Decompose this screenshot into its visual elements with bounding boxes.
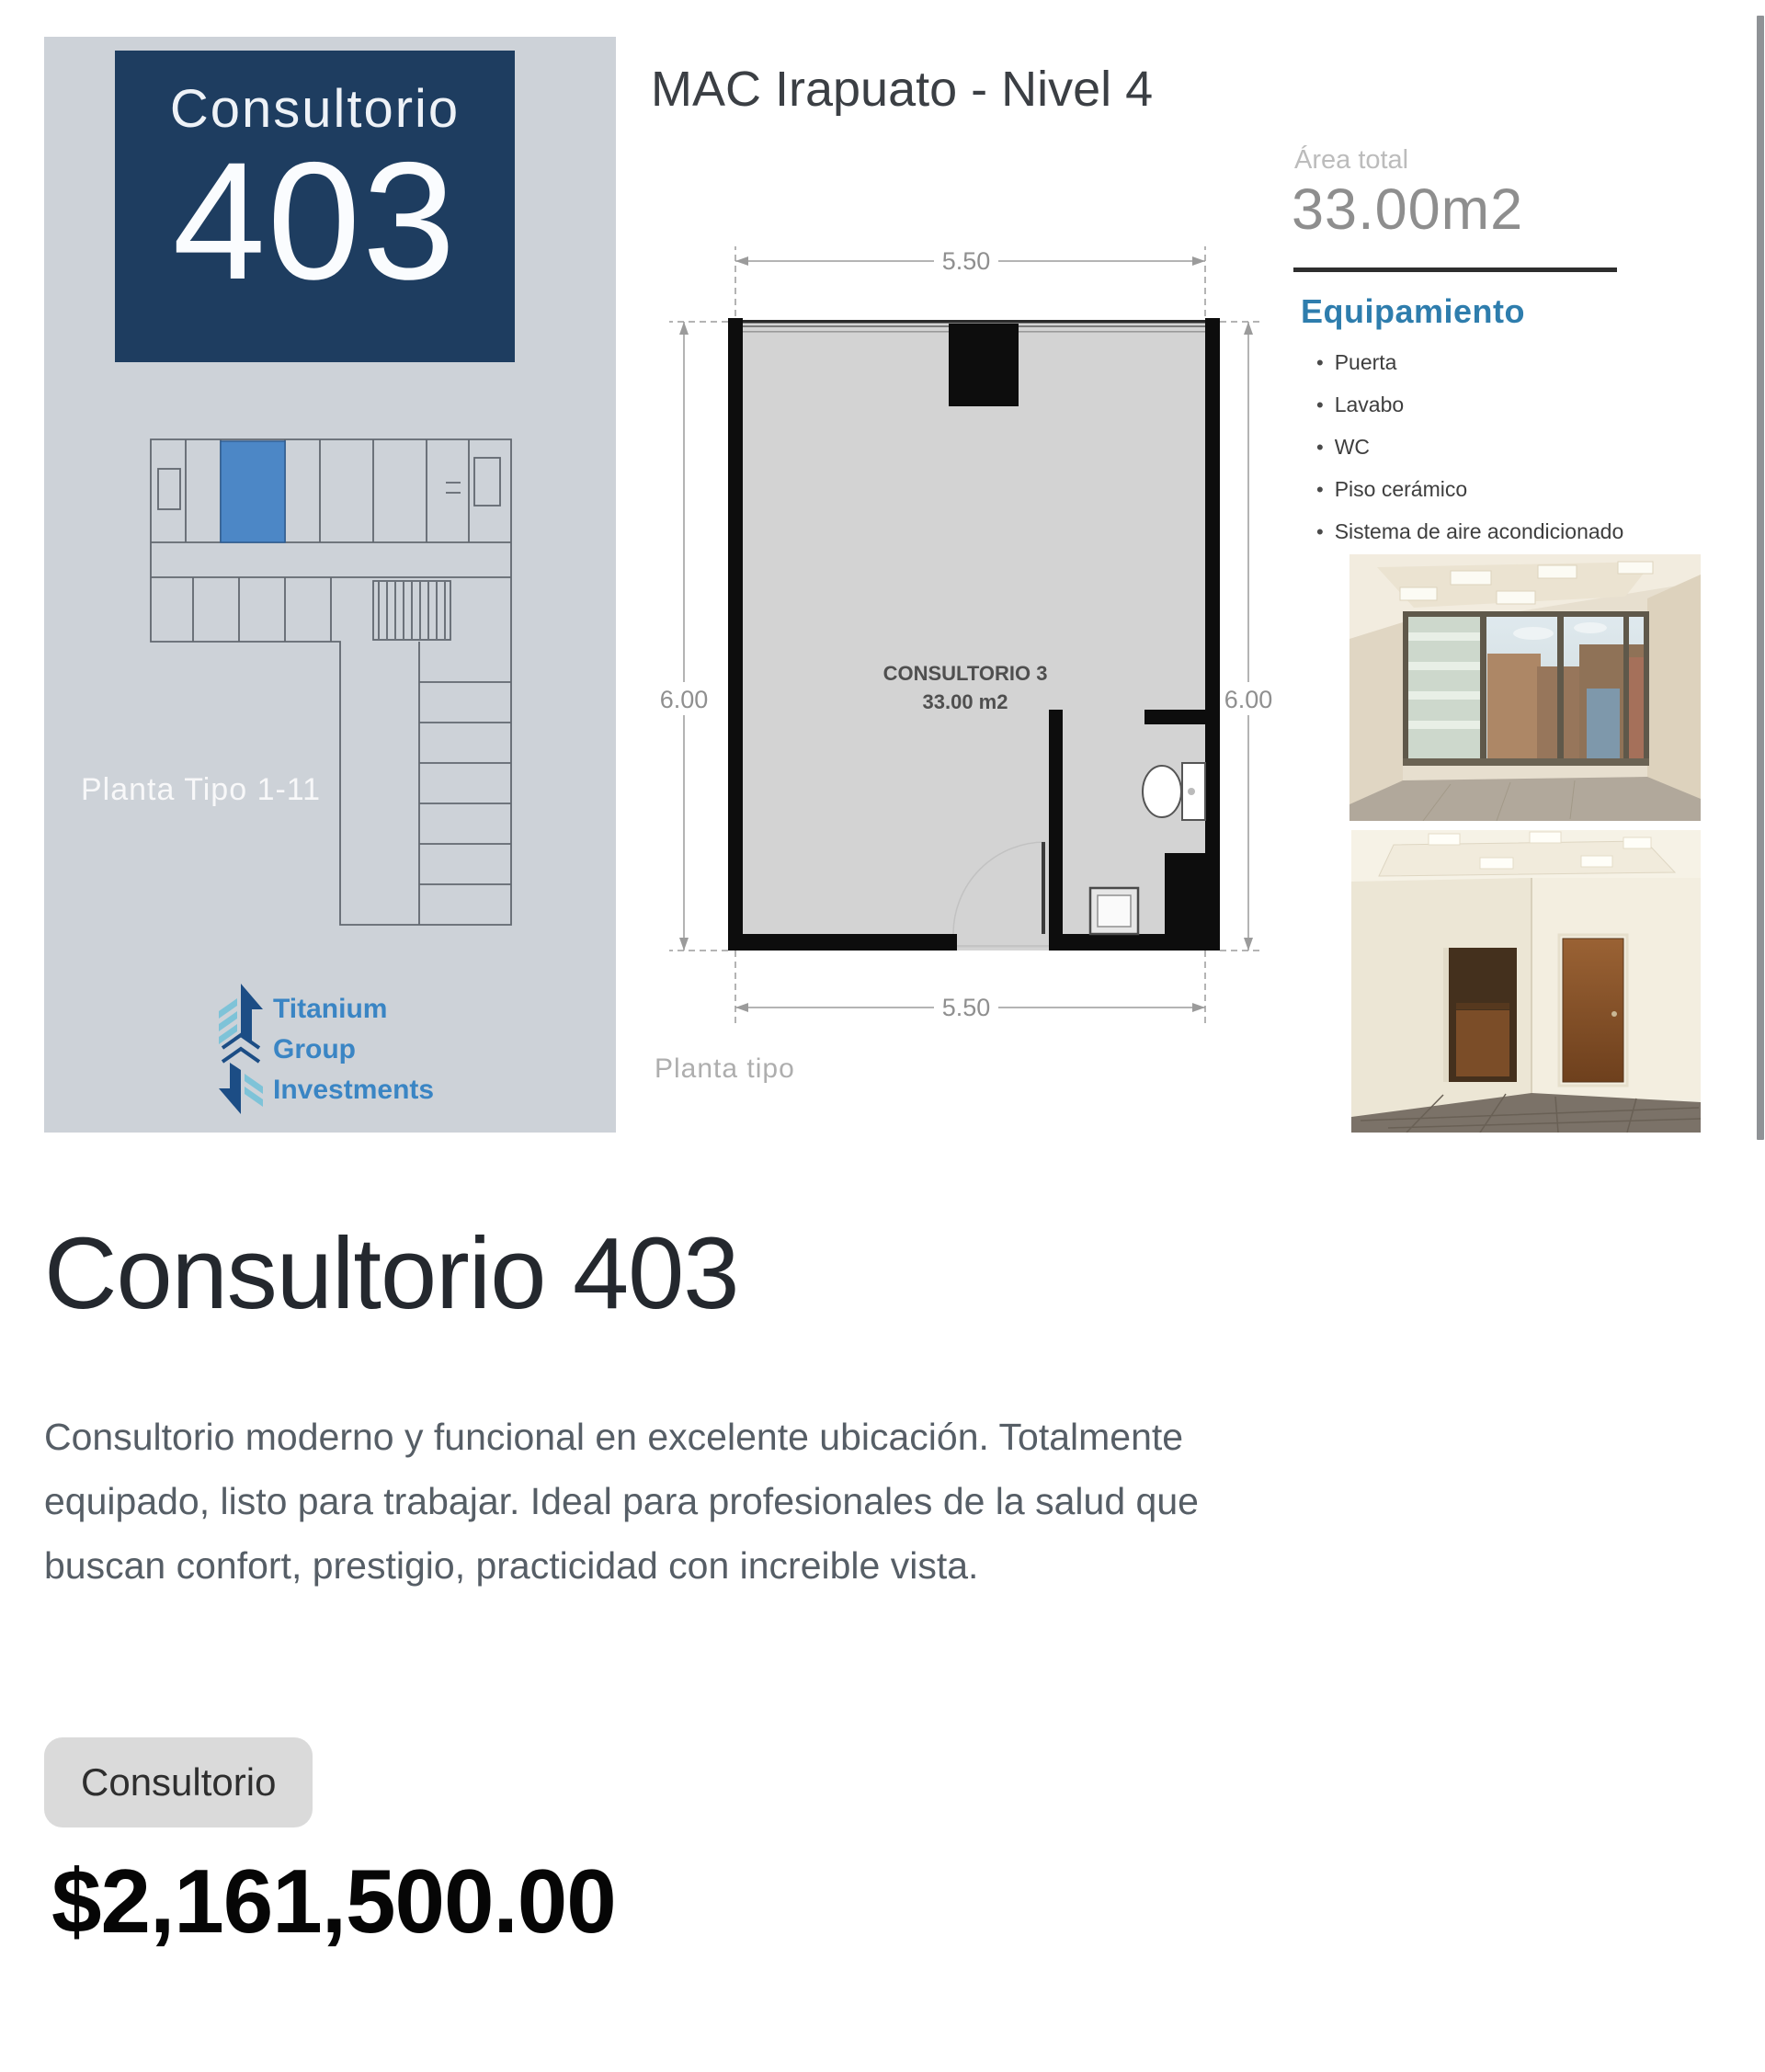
- dim-label-left: 6.00: [660, 686, 709, 713]
- brand-logo-line2: Group: [273, 1030, 434, 1070]
- listing-description: Consultorio moderno y funcional en excel…: [44, 1405, 1423, 1598]
- unit-number: 403: [115, 142, 515, 301]
- vertical-scrollbar-thumb[interactable]: [1757, 16, 1764, 1140]
- brand-logo: Titanium Group Investments: [214, 982, 434, 1116]
- equipment-item-label: Lavabo: [1335, 393, 1404, 416]
- equipment-item: WC: [1316, 436, 1702, 459]
- page-title: Consultorio 403: [44, 1215, 738, 1332]
- brand-logo-icon: [214, 982, 268, 1116]
- area-total-label: Área total: [1294, 145, 1408, 176]
- equipment-item-label: Piso cerámico: [1335, 477, 1467, 501]
- toilet-fixture: [1143, 763, 1205, 820]
- floor-type-caption: Planta Tipo 1-11: [81, 772, 321, 808]
- flyer-left-panel: Consultorio 403 Planta Tipo 1-11: [44, 37, 616, 1133]
- flyer-title: MAC Irapuato - Nivel 4: [651, 61, 1153, 118]
- brand-logo-line1: Titanium: [273, 989, 434, 1030]
- equipment-item: Sistema de aire acondicionado: [1316, 520, 1702, 543]
- unit-number-box: Consultorio 403: [115, 51, 515, 362]
- highlighted-unit-room: [221, 441, 285, 542]
- equipment-list: Puerta Lavabo WC Piso cerámico Sistema d…: [1316, 351, 1702, 563]
- equipment-item-label: WC: [1335, 435, 1370, 459]
- dim-label-bottom: 5.50: [942, 994, 991, 1021]
- photo-doors-interior-render: [1351, 830, 1701, 1133]
- room-floor: [728, 322, 1220, 951]
- listing-description-line: equipado, listo para trabajar. Ideal par…: [44, 1469, 1423, 1533]
- photo-window-office-render: [1349, 554, 1701, 821]
- dim-label-right: 6.00: [1224, 686, 1273, 713]
- plan-caption: Planta tipo: [655, 1053, 795, 1085]
- mini-floorplan-drawing: [138, 432, 524, 933]
- equipment-title: Equipamiento: [1301, 292, 1525, 331]
- dim-label-top: 5.50: [942, 247, 991, 275]
- brand-logo-text: Titanium Group Investments: [273, 989, 434, 1110]
- equipment-item: Lavabo: [1316, 393, 1702, 416]
- room-name-label: CONSULTORIO 3: [883, 662, 1048, 685]
- sink-fixture: [1090, 888, 1138, 934]
- listing-photo-doors-interior: [1351, 830, 1701, 1133]
- price: $2,161,500.00: [51, 1850, 616, 1953]
- divider-rule: [1293, 268, 1617, 272]
- mini-floorplan-outline: [151, 439, 511, 925]
- equipment-item: Puerta: [1316, 351, 1702, 374]
- area-total-value: 33.00m2: [1292, 176, 1523, 243]
- equipment-item-label: Sistema de aire acondicionado: [1335, 519, 1624, 543]
- equipment-item: Piso cerámico: [1316, 478, 1702, 501]
- room-area-label: 33.00 m2: [923, 690, 1008, 713]
- category-badge: Consultorio: [44, 1737, 313, 1827]
- unit-floorplan-drawing: 5.50 6.00 6.00 5.50 CONSULTORIO 3: [643, 221, 1287, 1057]
- listing-description-line: buscan confort, prestigio, practicidad c…: [44, 1533, 1423, 1598]
- equipment-item-label: Puerta: [1335, 350, 1397, 374]
- brand-logo-line3: Investments: [273, 1070, 434, 1110]
- listing-description-line: Consultorio moderno y funcional en excel…: [44, 1405, 1423, 1469]
- listing-photo-window-office: [1349, 554, 1701, 821]
